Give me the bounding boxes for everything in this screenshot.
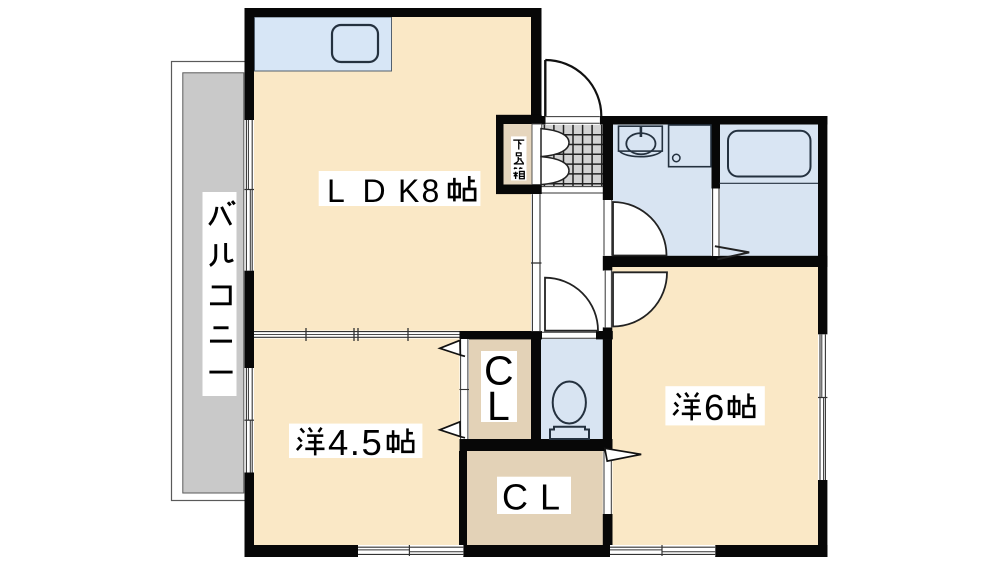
- svg-text:8: 8: [422, 173, 440, 209]
- svg-text:4.5: 4.5: [328, 422, 383, 463]
- svg-text:L: L: [540, 477, 560, 518]
- svg-text:6: 6: [704, 387, 724, 428]
- svg-text:L: L: [327, 173, 345, 209]
- svg-text:C: C: [502, 477, 528, 518]
- svg-text:L: L: [487, 383, 510, 429]
- svg-text:K: K: [398, 173, 419, 209]
- svg-text:D: D: [363, 173, 386, 209]
